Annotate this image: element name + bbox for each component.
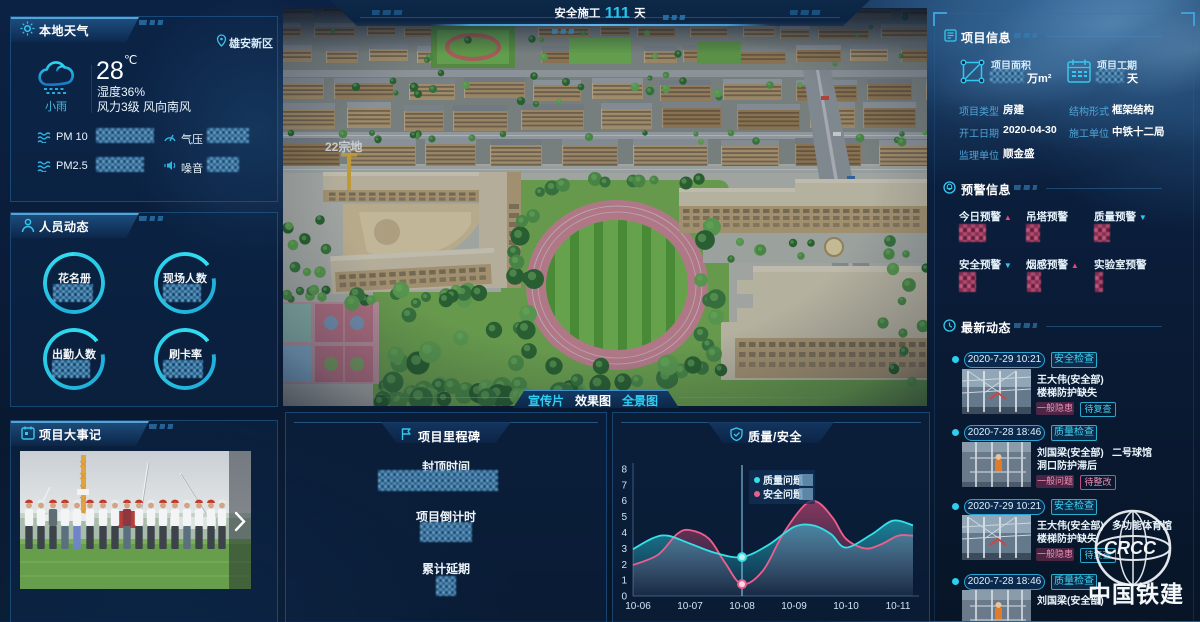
svg-text:8: 8 xyxy=(621,465,627,476)
svg-text:CRCC: CRCC xyxy=(1104,538,1157,558)
svg-text:2: 2 xyxy=(621,560,627,571)
svg-text:5: 5 xyxy=(621,512,627,523)
svg-text:1: 1 xyxy=(621,576,627,587)
svg-text:3: 3 xyxy=(621,544,627,555)
svg-text:10-11: 10-11 xyxy=(886,601,911,612)
svg-text:质量问题: 质量问题 xyxy=(763,474,804,487)
svg-text:6: 6 xyxy=(621,496,627,507)
svg-text:10-06: 10-06 xyxy=(625,601,651,612)
svg-text:7: 7 xyxy=(621,480,627,491)
svg-text:安全问题: 安全问题 xyxy=(763,488,804,501)
svg-text:10-08: 10-08 xyxy=(729,601,755,612)
svg-text:10-07: 10-07 xyxy=(677,601,703,612)
svg-text:10-09: 10-09 xyxy=(781,601,807,612)
svg-text:10-10: 10-10 xyxy=(833,601,859,612)
svg-text:4: 4 xyxy=(621,528,627,539)
